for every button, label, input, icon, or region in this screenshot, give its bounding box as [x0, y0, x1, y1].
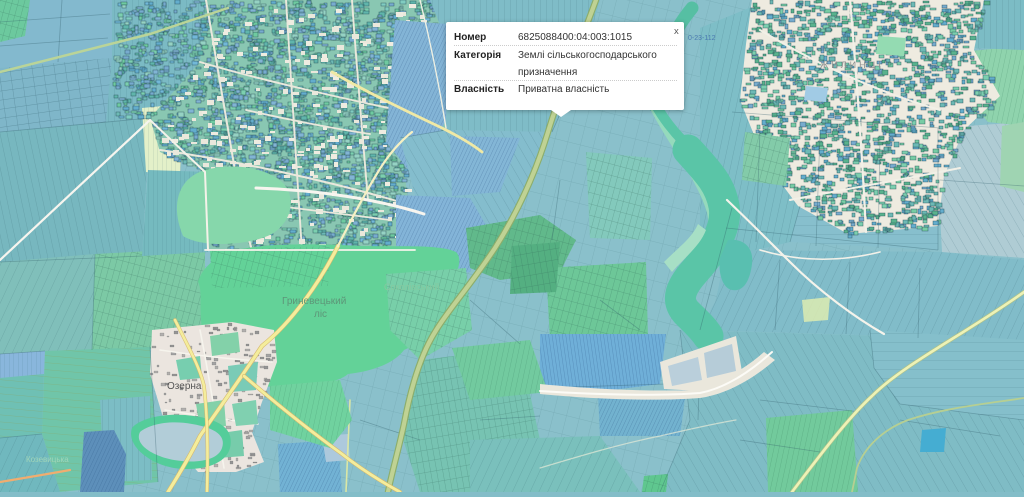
svg-text:Озерна: Озерна [167, 381, 202, 392]
svg-text:ліс: ліс [314, 309, 327, 320]
svg-text:Соколівський: Соколівський [384, 282, 439, 292]
svg-text:Гриневецький: Гриневецький [282, 296, 346, 307]
svg-text:0-23-112: 0-23-112 [688, 35, 716, 42]
